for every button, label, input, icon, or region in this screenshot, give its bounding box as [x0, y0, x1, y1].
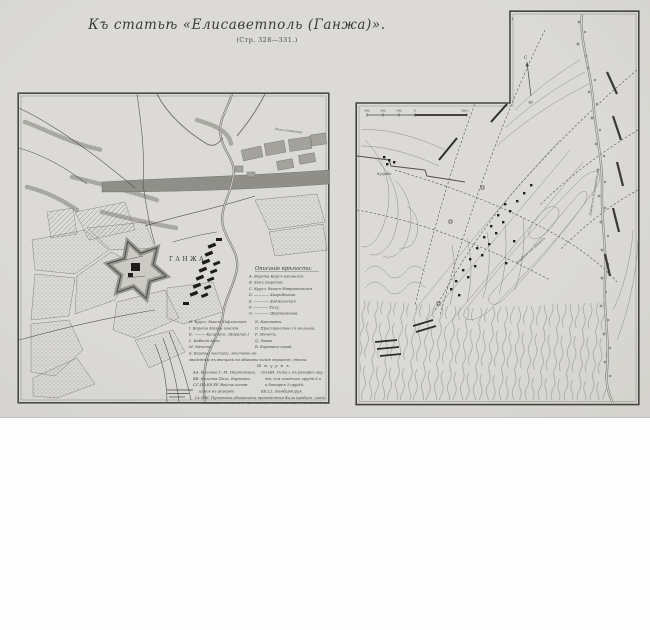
svg-text:Р. Мечеть.: Р. Мечеть.: [254, 333, 277, 337]
svg-text:L. Кабачій валъ.: L. Кабачій валъ.: [188, 339, 221, 343]
assault-heading: Ш т у р м ъ.: [256, 364, 291, 368]
road-label-2: Дорога изъ Елисаветполя: [588, 171, 600, 217]
svg-text:АА. Колонна Г.-М. Портнягина.: АА. Колонна Г.-М. Портнягина.: [192, 371, 256, 375]
south-letter: Ю: [528, 100, 533, 105]
enemy-line-dashes: [605, 72, 623, 276]
svg-text:и батарея 3 орудій.: и батарея 3 орудій.: [265, 383, 304, 387]
svg-text:F. ———— Халу.: F. ———— Халу.: [248, 306, 280, 310]
svg-text:300: 300: [364, 109, 370, 113]
village-label: Кулраба: [376, 172, 391, 176]
suburb-gray-blocks: [235, 133, 327, 177]
svg-text:Е. ———— Хаджимская.: Е. ———— Хаджимская.: [248, 299, 297, 303]
svg-text:200: 200: [380, 109, 386, 113]
svg-text:СС.DD.ЕЕ.FF. Войска остав-: СС.DD.ЕЕ.FF. Войска остав-: [193, 383, 249, 387]
svg-text:шіяся въ резервѣ.: шіяся въ резервѣ.: [199, 389, 235, 393]
svg-text:дія, для осадныхъ орудій 6 и: дія, для осадныхъ орудій 6 и: [265, 377, 322, 381]
svg-text:КК.LL. Бомбардируя.: КК.LL. Бомбардируя.: [260, 389, 303, 393]
suburb-dark-band: [102, 170, 329, 192]
svg-text:G. ———— Шармазанова.: G. ———— Шармазанова.: [249, 312, 298, 316]
svg-text:колоннами: ихъ №1-й у., на 1-м: колоннами: ихъ №1-й у., на 1-мъ кол. Пор…: [199, 402, 330, 404]
citadel-block: [131, 263, 140, 271]
svg-text:С. Кругл. башня Мавританская.: С. Кругл. башня Мавританская.: [249, 287, 313, 291]
village-buildings: [383, 156, 395, 165]
svg-text:500 с.: 500 с.: [461, 109, 470, 113]
village-road: Кулраба: [357, 156, 465, 182]
right-map: Кулраба: [355, 10, 640, 406]
svg-text:ВВ. Колонна Полк. Карягина.: ВВ. Колонна Полк. Карягина.: [192, 377, 251, 381]
north-letter: С: [524, 55, 527, 60]
svg-text:N. Казематы.: N. Казематы.: [254, 320, 283, 324]
svg-text:зведенные въ вѣнцахъ на обыват: зведенные въ вѣнцахъ на обывательскія ст…: [189, 358, 307, 362]
svg-text:О. Пространство съ мельниц.: О. Пространство съ мельниц.: [255, 326, 316, 330]
svg-text:D. ———— Хазрибекова.: D. ———— Хазрибекова.: [248, 293, 296, 297]
svg-text:Q. Лавки.: Q. Лавки.: [255, 339, 273, 343]
svg-text:100: 100: [396, 109, 402, 113]
contour-lines: [361, 60, 638, 340]
river-label: Рѣка Ганжинка: [274, 127, 303, 134]
svg-text:Н. Кругл. башня Тифлисская.: Н. Кругл. башня Тифлисская.: [188, 320, 247, 324]
scale-bar: 300 200 100 0 500 с.: [364, 109, 470, 117]
scanned-page: Къ статьѣ «Елисаветполь (Ганжа)». (Стр. …: [0, 0, 650, 630]
left-map: Рѣка Ганжинка ГАНЖА: [17, 92, 330, 404]
svg-text:LL.ММ. Пунктами обозначены про: LL.ММ. Пунктами обозначены проведенныя б…: [194, 396, 326, 400]
svg-text:R. Караванъ-сарай.: R. Караванъ-сарай.: [254, 345, 293, 349]
svg-text:В. Ханъ (ворота).: В. Ханъ (ворота).: [248, 281, 284, 285]
svg-text:А. Ворота Карсъ-капинскія.: А. Ворота Карсъ-капинскія.: [248, 275, 304, 279]
svg-text:К. ——— Кала ханс. (Карапап.): К. ——— Кала ханс. (Карапап.): [188, 333, 249, 337]
svg-text:GG.НН. Остал. въ резервѣ ору-: GG.НН. Остал. въ резервѣ ору-: [261, 371, 324, 375]
svg-text:0: 0: [414, 109, 416, 113]
svg-text:М. Мечеть.: М. Мечеть.: [188, 345, 212, 349]
road-label-1: Зазубани или Дзегамъ: [515, 236, 546, 264]
svg-text:S. Казачьи мостики, мѣстами во: S. Казачьи мостики, мѣстами во-: [189, 352, 258, 356]
legend-heading: Описаніе крѣпости:: [255, 266, 312, 272]
svg-text:I. Ворота Мазры ханскія.: I. Ворота Мазры ханскія.: [188, 326, 239, 330]
city-name-label: ГАНЖА: [169, 256, 206, 263]
